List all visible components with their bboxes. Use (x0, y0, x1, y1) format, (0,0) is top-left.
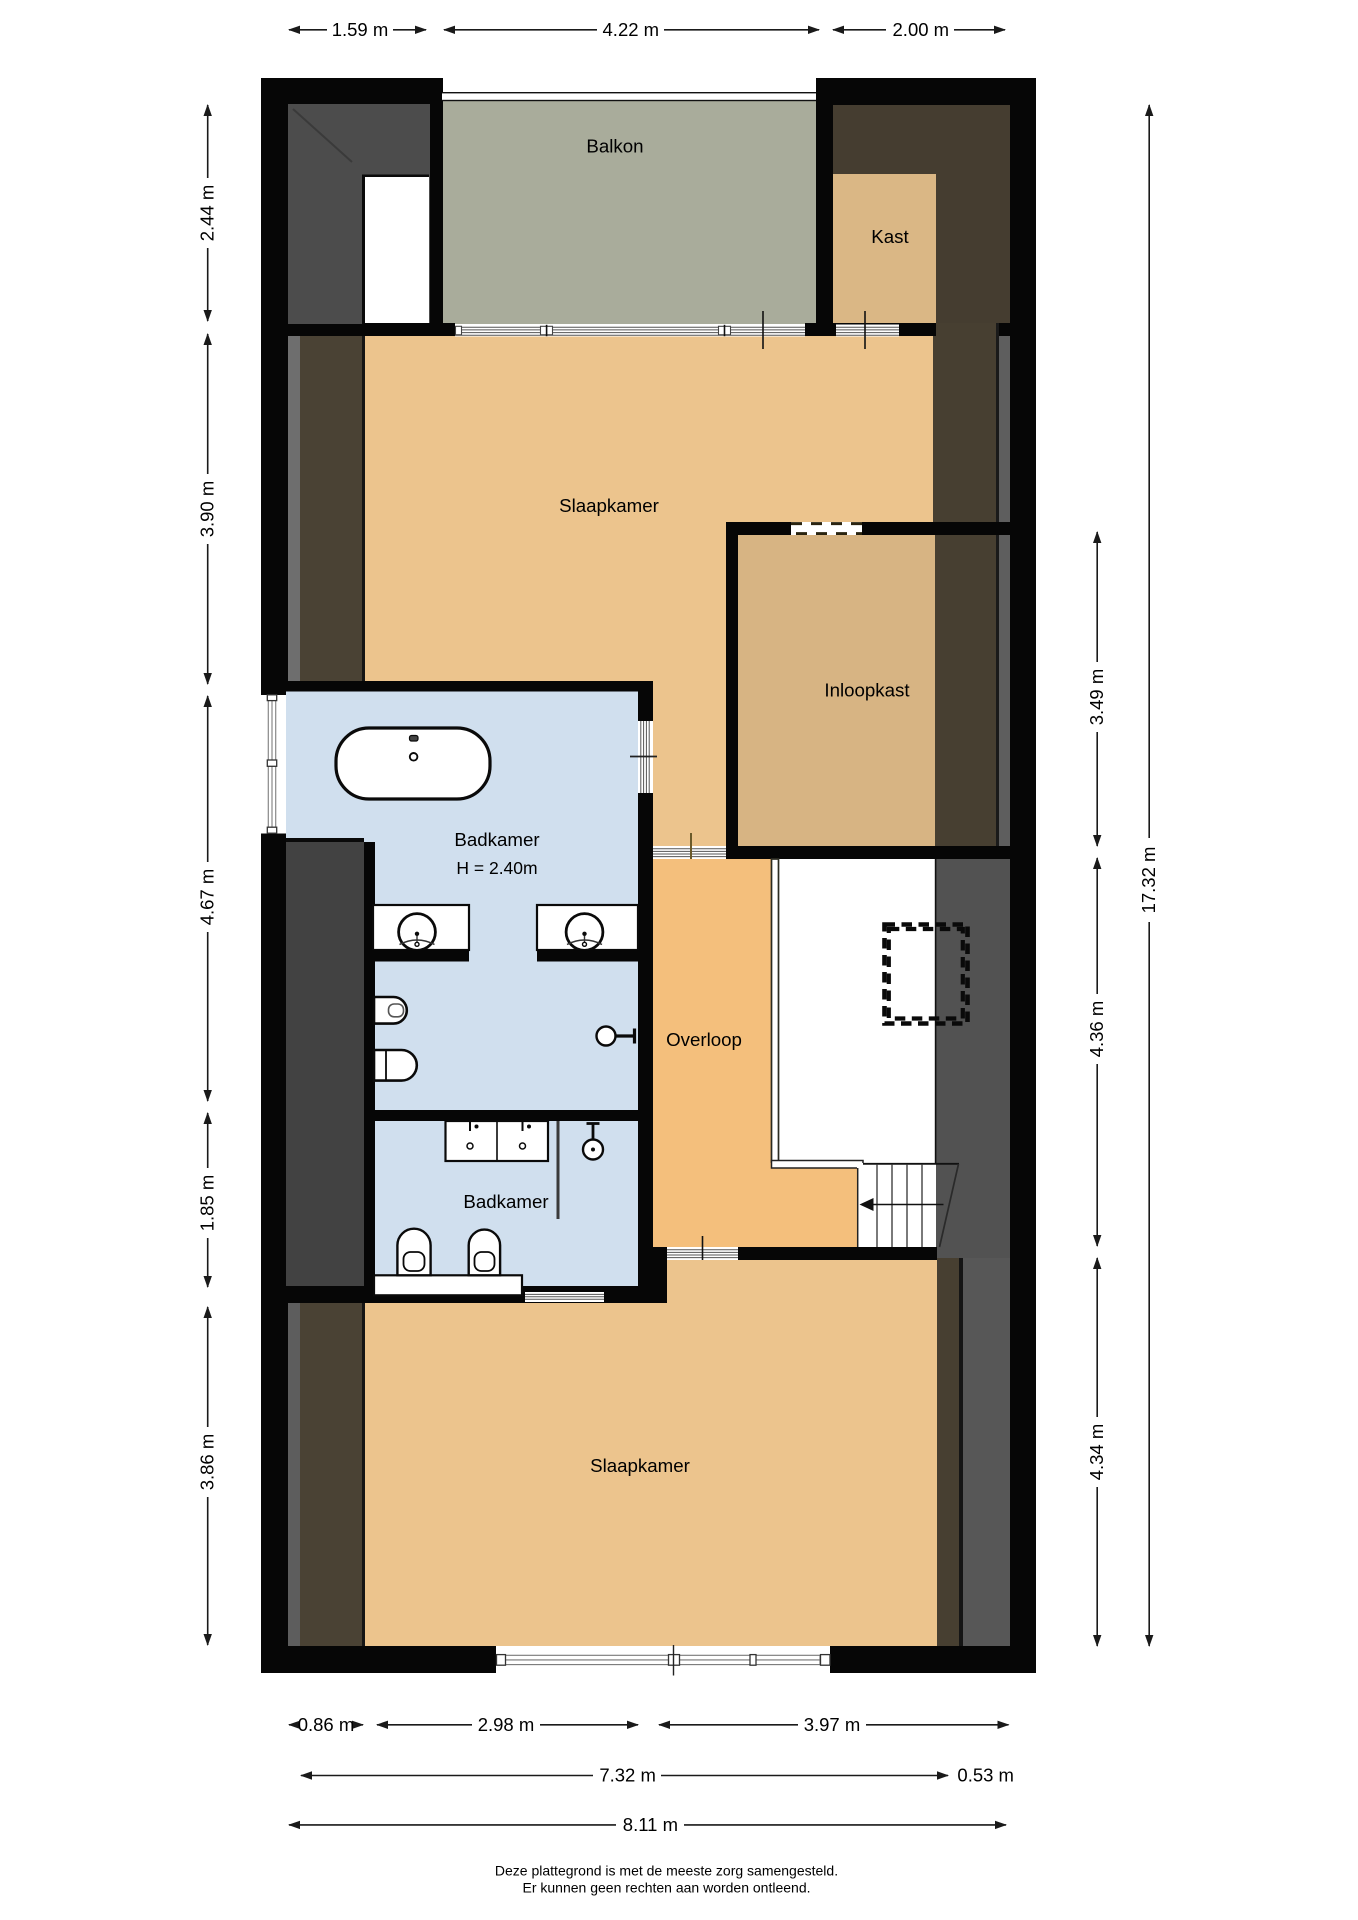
svg-text:1.85 m: 1.85 m (197, 1175, 218, 1232)
svg-text:3.90 m: 3.90 m (197, 481, 218, 538)
svg-text:1.59 m: 1.59 m (332, 19, 389, 40)
svg-text:0.86 m: 0.86 m (298, 1714, 355, 1735)
svg-text:2.44 m: 2.44 m (197, 185, 218, 242)
svg-text:Er kunnen geen rechten aan wor: Er kunnen geen rechten aan worden ontlee… (523, 1880, 811, 1896)
svg-text:2.00 m: 2.00 m (893, 19, 950, 40)
svg-text:3.49 m: 3.49 m (1086, 669, 1107, 726)
svg-text:Badkamer: Badkamer (463, 1191, 548, 1212)
svg-text:17.32 m: 17.32 m (1138, 847, 1159, 914)
svg-text:2.98 m: 2.98 m (478, 1714, 535, 1735)
svg-text:Badkamer: Badkamer (454, 829, 539, 850)
svg-text:Overloop: Overloop (666, 1029, 742, 1050)
svg-text:Deze plattegrond is met de mee: Deze plattegrond is met de meeste zorg s… (495, 1863, 838, 1879)
svg-text:8.11 m: 8.11 m (623, 1814, 678, 1835)
svg-text:Slaapkamer: Slaapkamer (590, 1455, 690, 1476)
svg-text:4.67 m: 4.67 m (197, 869, 218, 926)
svg-text:4.36 m: 4.36 m (1086, 1001, 1107, 1058)
svg-text:Kast: Kast (871, 226, 909, 247)
svg-text:3.86 m: 3.86 m (197, 1434, 218, 1491)
svg-text:7.32 m: 7.32 m (599, 1765, 656, 1786)
svg-text:Slaapkamer: Slaapkamer (559, 495, 659, 516)
svg-text:Inloopkast: Inloopkast (824, 680, 910, 701)
svg-text:4.22 m: 4.22 m (603, 19, 660, 40)
svg-text:Balkon: Balkon (586, 136, 643, 157)
svg-text:0.53 m: 0.53 m (957, 1765, 1014, 1786)
svg-text:3.97 m: 3.97 m (804, 1714, 861, 1735)
svg-text:H = 2.40m: H = 2.40m (456, 858, 537, 878)
svg-text:4.34 m: 4.34 m (1086, 1424, 1107, 1481)
